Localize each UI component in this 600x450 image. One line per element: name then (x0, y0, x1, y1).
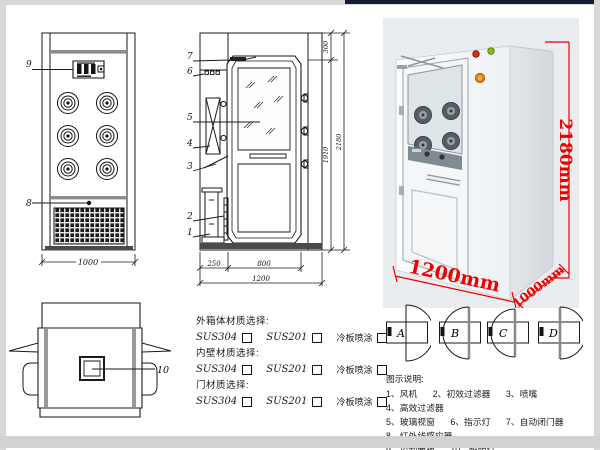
material-checkbox[interactable] (242, 397, 252, 407)
material-option-label: SUS201 (266, 362, 307, 378)
svg-text:A: A (396, 327, 405, 340)
legend-item: 2、初效过滤器 (433, 389, 491, 399)
plan-left-door-wing (9, 343, 38, 395)
plan-left-wall (44, 329, 48, 407)
section-base (200, 243, 322, 249)
svg-text:C: C (499, 327, 508, 340)
plan-back-section (42, 303, 140, 328)
svg-text:1200: 1200 (252, 275, 270, 283)
svg-text:800: 800 (257, 260, 271, 268)
frame-left-border (0, 0, 6, 450)
material-option-label: SUS201 (266, 394, 307, 410)
svg-text:5: 5 (187, 113, 193, 123)
fan-filter-stack (204, 98, 228, 168)
material-option-label: 冷板喷涂 (336, 362, 372, 378)
material-checkbox[interactable] (242, 333, 252, 343)
section-view-drawing: 7 6 5 4 3 2 1 250 800 1200 (180, 28, 355, 290)
material-option-label: SUS304 (196, 362, 237, 378)
svg-text:4: 4 (186, 139, 193, 149)
plan-right-wall (132, 329, 136, 407)
door-hinge (399, 186, 404, 195)
ir-sensor-dot (87, 201, 91, 205)
indicator-lights (205, 71, 219, 74)
svg-text:3: 3 (187, 162, 193, 172)
material-selection: 外箱体材质选择: SUS304 SUS201 冷板喷涂 内壁材质选择: SUS3… (196, 314, 386, 410)
legend-item: 1、风机 (386, 389, 417, 399)
blow-nozzles (58, 93, 118, 180)
material-option-label: SUS201 (266, 330, 307, 346)
material-option-label: 冷板喷涂 (336, 394, 372, 410)
door-hinge (399, 106, 404, 115)
frame-top-dark-strip (345, 0, 600, 4)
svg-text:1910: 1910 (322, 147, 330, 164)
svg-text:2180mm: 2180mm (555, 118, 575, 201)
frame-right-border (594, 0, 600, 450)
material-options-row: SUS304 SUS201 冷板喷涂 (196, 330, 386, 346)
svg-text:6: 6 (187, 67, 193, 77)
door-glass (238, 68, 290, 150)
legend-item: 4、高效过滤器 (386, 403, 444, 413)
material-options-row: SUS304 SUS201 冷板喷涂 (196, 362, 386, 378)
material-group-title: 外箱体材质选择: (196, 314, 386, 330)
side-nozzle-bumps (301, 94, 308, 168)
material-checkbox[interactable] (312, 397, 322, 407)
legend-item: 5、玻璃视窗 (386, 417, 435, 427)
ceiling-lamp (80, 357, 104, 380)
material-group-title: 门材质选择: (196, 378, 386, 394)
return-air-grille (54, 208, 124, 244)
material-group-title: 内壁材质选择: (196, 346, 386, 362)
front-base (45, 246, 133, 251)
material-option-label: SUS304 (196, 330, 237, 346)
svg-text:300: 300 (322, 41, 330, 53)
spec-sheet-page: 9 8 (0, 0, 600, 450)
legend-title: 图示说明: (386, 372, 591, 386)
door-option-a: A (385, 302, 431, 366)
front-mid-trim (50, 196, 127, 199)
svg-text:9: 9 (26, 60, 32, 70)
control-panel (73, 61, 104, 78)
product-photo: 2180mm 1200mm 1000mm (383, 18, 579, 308)
section-right-dimensions (308, 30, 350, 253)
material-options-row: SUS304 SUS201 冷板喷涂 (196, 394, 386, 410)
material-option-label: SUS304 (196, 394, 237, 410)
svg-text:250: 250 (206, 260, 221, 268)
legend-item: 7、自动闭门器 (506, 417, 564, 427)
plan-view-drawing: 10 (5, 295, 180, 430)
door-option-c: C (486, 302, 532, 366)
door-option-b: B (438, 302, 484, 366)
front-view-drawing: 9 8 (20, 28, 165, 273)
material-checkbox[interactable] (312, 333, 322, 343)
svg-text:1: 1 (187, 228, 193, 238)
legend-item: 3、喷嘴 (506, 389, 537, 399)
svg-text:D: D (548, 327, 558, 340)
cabinet-door (399, 58, 468, 284)
material-option-label: 冷板喷涂 (336, 330, 372, 346)
svg-text:B: B (450, 327, 459, 340)
plan-main-body (38, 328, 142, 408)
svg-text:8: 8 (26, 199, 32, 209)
svg-text:2: 2 (186, 212, 193, 222)
door-option-d: D (537, 302, 583, 366)
legend-row: 1、风机 2、初效过滤器 3、喷嘴 4、高效过滤器 (386, 387, 591, 415)
svg-text:2180: 2180 (335, 134, 343, 152)
front-top-trim (50, 50, 127, 54)
svg-text:7: 7 (187, 52, 193, 62)
svg-text:10: 10 (157, 365, 169, 376)
material-checkbox[interactable] (242, 365, 252, 375)
material-checkbox[interactable] (312, 365, 322, 375)
svg-text:1000: 1000 (78, 258, 98, 267)
plan-front-strip (40, 408, 140, 417)
frame-bottom-border (0, 436, 600, 448)
legend-item: 6、指示灯 (450, 417, 490, 427)
